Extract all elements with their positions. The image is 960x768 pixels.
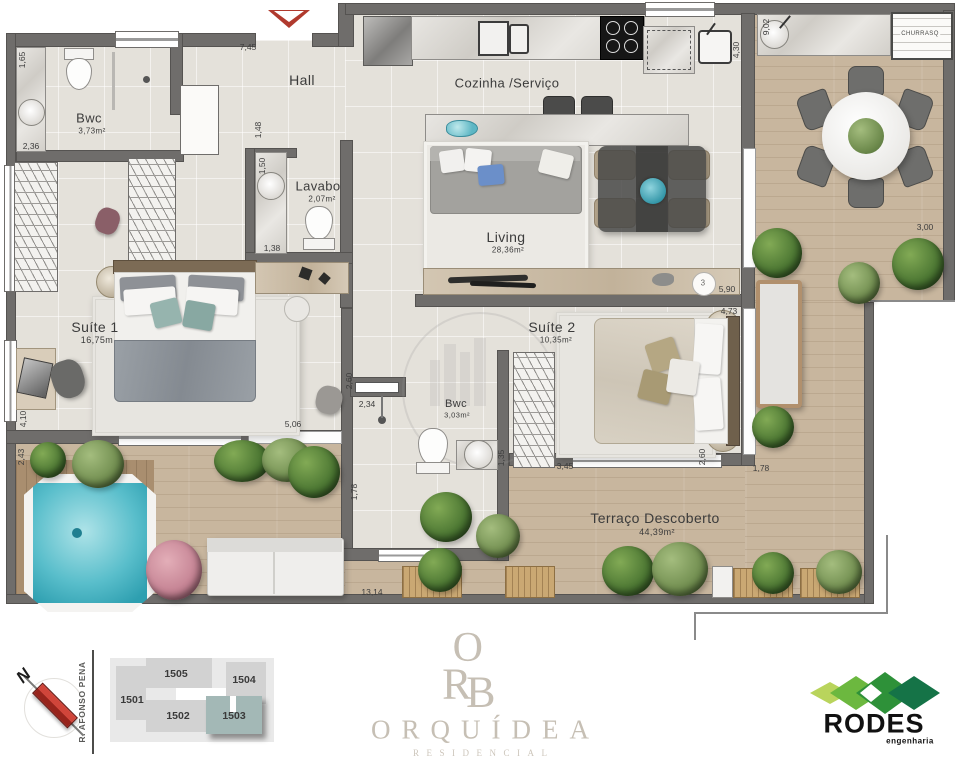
brand-logo: O R B ORQUÍDEA RESIDENCIAL	[350, 624, 610, 764]
cooktop-burner	[624, 39, 638, 53]
decor-fish	[446, 120, 478, 137]
pillow	[439, 148, 466, 173]
room-label-suite2: Suíte 2	[528, 319, 575, 335]
plant	[752, 552, 794, 594]
plant	[892, 238, 944, 290]
dimension: 1,35	[496, 450, 506, 467]
plant	[752, 406, 794, 448]
pillow-blue	[477, 164, 505, 186]
wardrobe	[513, 352, 555, 468]
keyplan-block	[116, 666, 146, 720]
cooktop-burner	[624, 21, 638, 35]
wall	[245, 148, 255, 260]
keyplan-unit-1501: 1501	[120, 694, 143, 706]
room-area-bwc2: 3,03m²	[444, 411, 470, 420]
room-area-living: 28,36m²	[492, 246, 524, 255]
jacuzzi	[24, 474, 156, 612]
dimension: 3,45	[557, 461, 574, 471]
floor-plan-sheet: 3 CHURRASQ	[0, 0, 960, 768]
dimension: 1,48	[253, 122, 263, 139]
churrasqueira-label: CHURRASQ	[900, 31, 940, 37]
wall	[341, 308, 353, 560]
slab-outline	[870, 300, 955, 302]
room-label-lavabo: Lavabo	[295, 179, 340, 194]
room-label-living: Living	[487, 229, 526, 245]
dimension: 1,38	[264, 243, 281, 253]
hall-closet	[180, 85, 219, 155]
plant	[838, 262, 880, 304]
fridge-space-dashed	[647, 30, 691, 70]
room-area-lavabo: 2,07m²	[308, 195, 335, 204]
jacuzzi-jet	[72, 528, 82, 538]
plant	[72, 440, 124, 488]
dimension: 3,00	[917, 222, 934, 232]
plant-pink	[146, 540, 202, 600]
bed-blanket	[114, 340, 256, 402]
cooktop-burner	[606, 21, 620, 35]
stool	[284, 296, 310, 322]
sink-basin	[464, 440, 493, 469]
street-divider	[92, 650, 94, 754]
dimension: 4,30	[731, 42, 741, 59]
dimension: 9,02	[761, 19, 771, 36]
accent-pillow	[182, 300, 216, 332]
wardrobe	[128, 158, 176, 264]
window	[115, 31, 179, 48]
bed-pillow	[666, 358, 700, 396]
dimension: 1,78	[349, 484, 359, 501]
dimension: 1,65	[17, 52, 27, 69]
plant	[816, 550, 862, 594]
terrace-bench	[756, 280, 802, 408]
room-label-terraco: Terraço Descoberto	[590, 510, 719, 526]
watermark-building	[474, 338, 486, 406]
street-label: R. AFONSO PENA	[77, 661, 87, 742]
brand-name: ORQUÍDEA	[360, 715, 600, 746]
room-area-suite2: 10,35m²	[540, 336, 572, 345]
plant	[420, 492, 472, 542]
keyplan-unit-1504: 1504	[232, 674, 255, 686]
kitchen-sink-double	[478, 21, 509, 56]
room-area-suite1: 16,75m	[81, 335, 113, 345]
planter-box	[505, 566, 555, 598]
dimension: 2,60	[344, 373, 354, 390]
watermark-building	[430, 360, 440, 406]
slab-outline	[694, 612, 888, 614]
outdoor-sofa-back	[207, 538, 342, 552]
callout-number: 3	[701, 279, 706, 288]
room-label-bwc2: Bwc	[445, 398, 467, 410]
wall	[6, 33, 16, 604]
sink-basin	[18, 99, 45, 126]
builder-subtitle: engenharia	[886, 737, 934, 746]
plant	[30, 442, 66, 478]
plant	[476, 514, 520, 558]
dimension: 7,45	[240, 42, 257, 52]
plant	[602, 546, 654, 596]
slab-outline	[886, 535, 888, 614]
toilet-tank	[303, 238, 335, 250]
outdoor-sofa-seam	[273, 552, 275, 594]
wall	[415, 294, 745, 307]
keyplan-unit-1505: 1505	[164, 668, 187, 680]
room-label-hall: Hall	[289, 72, 315, 88]
dimension: 4,10	[18, 411, 28, 428]
dimension: 5,06	[285, 419, 302, 429]
kitchen-sink-small	[509, 24, 529, 54]
table-centerpiece-plant	[848, 118, 884, 154]
dimension: 4,73	[721, 306, 738, 316]
dimension: 2,60	[697, 449, 707, 466]
plant-palm	[288, 446, 340, 498]
terrace-chair	[848, 178, 884, 208]
shower-head-icon	[143, 76, 150, 83]
dimension: 1,50	[257, 158, 267, 175]
window	[645, 2, 715, 17]
keyplan: 1501 1505 1504 1502 1503	[104, 650, 284, 754]
dimension: 2,36	[23, 141, 40, 151]
plant	[652, 542, 708, 596]
wall	[864, 302, 874, 604]
room-area-terraco: 44,39m²	[639, 527, 675, 537]
brand-subtitle: RESIDENCIAL	[406, 748, 555, 758]
shower-glass	[112, 52, 115, 110]
builder-name: RODES	[823, 709, 924, 740]
laundry-tank	[698, 30, 732, 64]
dimension: 2,34	[359, 399, 376, 409]
dimension: 2,43	[16, 449, 26, 466]
dimension: 5,90	[719, 284, 736, 294]
centerpiece	[640, 178, 666, 204]
room-label-bwc1: Bwc	[76, 111, 102, 126]
niche-shelf	[355, 382, 399, 393]
keyplan-unit-1502: 1502	[166, 710, 189, 722]
keyplan-unit-1503: 1503	[222, 710, 245, 722]
room-label-cozinha: Cozinha /Serviço	[455, 76, 560, 91]
plant	[752, 228, 802, 278]
cooktop-burner	[606, 39, 620, 53]
dimension: 1,78	[753, 463, 770, 473]
terrace-pillar	[712, 566, 733, 598]
room-area-bwc1: 3,73m²	[78, 127, 105, 136]
sink-basin	[257, 172, 285, 200]
toilet-tank	[416, 462, 450, 474]
shower-hose	[381, 396, 383, 418]
dimension: 13,14	[361, 587, 382, 597]
plant	[418, 548, 462, 592]
slab-outline	[694, 612, 696, 640]
room-label-suite1: Suíte 1	[71, 319, 118, 335]
watermark-building	[444, 344, 456, 406]
kitchen-cabinet	[363, 16, 413, 66]
decor-bird	[652, 273, 674, 286]
builder-logo: RODES engenharia	[808, 668, 948, 748]
brand-monogram-b: B	[466, 667, 496, 718]
bed-headboard	[726, 316, 740, 446]
wardrobe	[14, 162, 58, 292]
